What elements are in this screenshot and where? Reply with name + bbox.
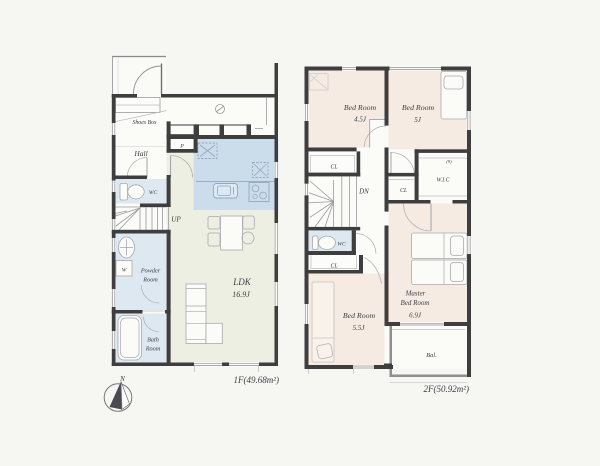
svg-text:W: W [122, 268, 127, 274]
svg-text:CL: CL [330, 165, 337, 171]
svg-text:CL: CL [330, 264, 337, 270]
svg-text:Hall: Hall [133, 149, 147, 158]
svg-text:Bed Room: Bed Room [401, 299, 430, 307]
svg-text:Room: Room [142, 277, 158, 284]
svg-text:2F(50.92m²): 2F(50.92m²) [424, 384, 469, 394]
svg-text:5J: 5J [414, 116, 422, 124]
svg-text:WC: WC [337, 242, 346, 248]
svg-text:UP: UP [171, 216, 181, 224]
svg-text:Powder: Powder [140, 268, 161, 275]
svg-text:Bed Room: Bed Room [343, 311, 376, 320]
svg-text:W.I.C: W.I.C [437, 178, 450, 184]
svg-text:4.5J: 4.5J [354, 116, 367, 124]
svg-text:Bath: Bath [147, 337, 159, 344]
svg-text:LDK: LDK [232, 277, 252, 287]
svg-text:1F(49.68m²): 1F(49.68m²) [234, 375, 279, 385]
svg-text:CL: CL [400, 188, 407, 194]
svg-text:Master: Master [405, 290, 426, 298]
svg-text:Bed Room: Bed Room [402, 103, 435, 112]
svg-text:N: N [119, 375, 125, 383]
svg-text:DN: DN [358, 188, 369, 196]
svg-text:Bed Room: Bed Room [344, 103, 377, 112]
svg-text:(9): (9) [446, 159, 452, 164]
svg-text:WC: WC [149, 190, 158, 196]
svg-text:Room: Room [145, 346, 161, 353]
svg-text:5.5J: 5.5J [353, 324, 366, 332]
svg-text:16.9J: 16.9J [232, 290, 250, 299]
svg-text:Shoes Box: Shoes Box [133, 120, 157, 126]
svg-text:6.9J: 6.9J [409, 312, 422, 320]
svg-text:Bal.: Bal. [426, 352, 437, 359]
svg-text:P: P [179, 144, 184, 150]
